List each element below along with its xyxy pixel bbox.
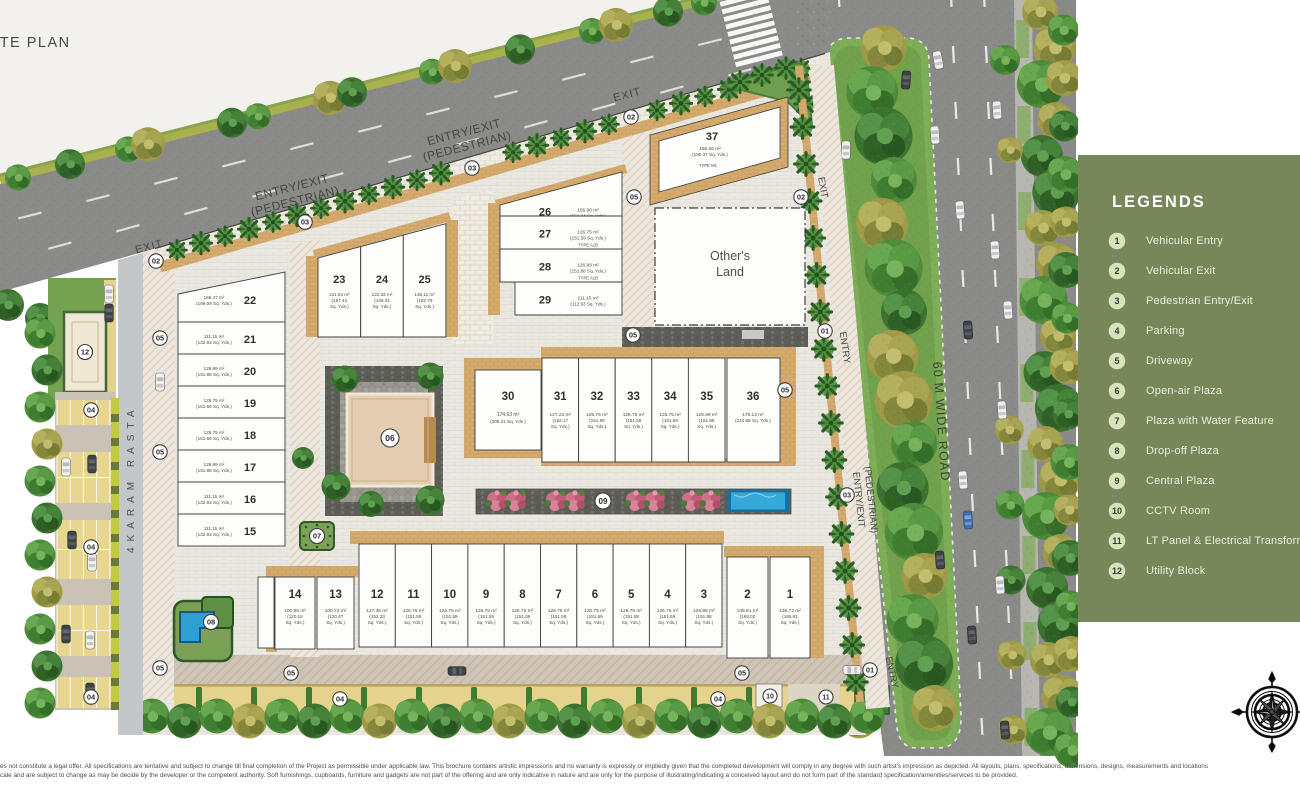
svg-text:09: 09 xyxy=(599,497,608,506)
svg-text:22: 22 xyxy=(244,295,256,307)
svg-text:TYPE M1: TYPE M1 xyxy=(699,163,718,168)
svg-text:Pedestrian Entry/Exit: Pedestrian Entry/Exit xyxy=(1146,295,1253,307)
svg-text:Sq. Yds.): Sq. Yds.) xyxy=(622,620,641,625)
svg-text:37: 37 xyxy=(706,131,718,143)
svg-text:12: 12 xyxy=(371,589,384,601)
svg-text:06: 06 xyxy=(385,433,395,443)
svg-text:31: 31 xyxy=(554,391,567,403)
svg-text:Sq. Yds.): Sq. Yds.) xyxy=(694,620,713,625)
svg-text:(151.59: (151.59 xyxy=(662,418,678,423)
svg-text:Other's: Other's xyxy=(710,249,750,263)
svg-text:29: 29 xyxy=(539,295,551,307)
svg-text:14: 14 xyxy=(289,589,302,601)
svg-text:34: 34 xyxy=(664,391,677,403)
svg-text:05: 05 xyxy=(287,669,295,678)
svg-text:(151.59 Sq. Yds.): (151.59 Sq. Yds.) xyxy=(570,236,606,241)
svg-text:04: 04 xyxy=(87,693,96,702)
svg-text:08: 08 xyxy=(207,618,215,627)
svg-text:111.15 m²: 111.15 m² xyxy=(204,494,224,499)
svg-text:(199.09 Sq. Yds.): (199.09 Sq. Yds.) xyxy=(196,301,232,306)
svg-text:3: 3 xyxy=(1114,296,1119,306)
svg-text:02: 02 xyxy=(627,113,635,122)
svg-text:cale and are subject to change: cale and are subject to change as may be… xyxy=(0,772,1018,779)
svg-text:04: 04 xyxy=(714,695,723,704)
svg-text:(151.59: (151.59 xyxy=(587,614,603,619)
svg-text:Sq. Yds.): Sq. Yds.) xyxy=(404,620,423,625)
svg-text:11: 11 xyxy=(407,589,420,601)
svg-text:Sq. Yds.): Sq. Yds.) xyxy=(661,424,680,429)
svg-text:8: 8 xyxy=(1114,446,1119,456)
svg-text:Drop-off Plaza: Drop-off Plaza xyxy=(1146,445,1220,457)
svg-text:21: 21 xyxy=(244,334,256,346)
svg-text:4KARAM RASTA: 4KARAM RASTA xyxy=(126,405,137,554)
svg-text:Sq. Yds.): Sq. Yds.) xyxy=(373,304,392,309)
svg-text:(151.59: (151.59 xyxy=(442,614,458,619)
svg-text:02: 02 xyxy=(152,257,160,266)
svg-text:2: 2 xyxy=(1114,266,1119,276)
svg-text:05: 05 xyxy=(738,669,746,678)
svg-text:03: 03 xyxy=(843,491,851,500)
svg-text:6: 6 xyxy=(1114,386,1119,396)
svg-text:04: 04 xyxy=(87,406,96,415)
svg-text:Sq. Yds.): Sq. Yds.) xyxy=(549,620,568,625)
svg-text:1: 1 xyxy=(787,589,794,601)
svg-text:Sq. Yds.): Sq. Yds.) xyxy=(697,424,716,429)
svg-text:4: 4 xyxy=(664,589,671,601)
svg-text:CCTV Room: CCTV Room xyxy=(1146,505,1210,517)
svg-text:(209.21 Sq. Yds.): (209.21 Sq. Yds.) xyxy=(490,419,526,424)
svg-text:Sq. Yds.): Sq. Yds.) xyxy=(781,620,800,625)
svg-text:es not constitute a legal offe: es not constitute a legal offer. All spe… xyxy=(0,763,1208,770)
svg-text:136.11 m²: 136.11 m² xyxy=(414,292,435,297)
svg-text:126.75 m²: 126.75 m² xyxy=(204,430,225,435)
svg-text:(120.16: (120.16 xyxy=(287,614,303,619)
svg-text:03: 03 xyxy=(301,218,309,227)
svg-text:6: 6 xyxy=(592,589,598,601)
svg-text:28: 28 xyxy=(539,262,551,274)
svg-text:05: 05 xyxy=(630,193,638,202)
svg-text:(152.33: (152.33 xyxy=(369,614,385,619)
svg-text:01: 01 xyxy=(821,327,829,336)
svg-text:Open-air Plaza: Open-air Plaza xyxy=(1146,385,1223,397)
svg-text:(151.88 Sq. Yds.): (151.88 Sq. Yds.) xyxy=(196,468,232,473)
svg-text:19: 19 xyxy=(244,398,256,410)
svg-text:10: 10 xyxy=(766,694,774,701)
svg-text:10: 10 xyxy=(1112,506,1122,516)
svg-text:(151.59: (151.59 xyxy=(406,614,422,619)
svg-text:03: 03 xyxy=(468,164,476,173)
svg-text:32: 32 xyxy=(591,391,604,403)
svg-text:7: 7 xyxy=(555,589,561,601)
svg-text:111.15 m²: 111.15 m² xyxy=(204,334,224,339)
svg-text:05: 05 xyxy=(156,664,164,673)
svg-text:Sq. Yds.): Sq. Yds.) xyxy=(477,620,496,625)
svg-text:20: 20 xyxy=(244,366,256,378)
svg-text:(165.91: (165.91 xyxy=(782,614,798,619)
svg-text:10: 10 xyxy=(443,589,456,601)
svg-text:(162.79: (162.79 xyxy=(417,298,433,303)
svg-text:36: 36 xyxy=(747,391,760,403)
svg-text:5: 5 xyxy=(628,589,635,601)
svg-text:(151.59: (151.59 xyxy=(515,614,531,619)
svg-text:Vehicular Exit: Vehicular Exit xyxy=(1146,265,1215,277)
svg-text:166.47 m²: 166.47 m² xyxy=(204,295,225,300)
svg-text:(151.59: (151.59 xyxy=(589,418,605,423)
svg-text:TYPE A1B: TYPE A1B xyxy=(578,276,598,281)
svg-text:(151.88 Sq. Yds.): (151.88 Sq. Yds.) xyxy=(570,269,606,274)
svg-text:Driveway: Driveway xyxy=(1146,355,1193,367)
svg-text:Sq. Yds.): Sq. Yds.) xyxy=(330,304,349,309)
svg-text:(132.93 Sq. Yds.): (132.93 Sq. Yds.) xyxy=(196,532,232,537)
svg-text:(151.59: (151.59 xyxy=(660,614,676,619)
svg-text:(210.65 Sq. Yds.): (210.65 Sq. Yds.) xyxy=(735,418,771,423)
svg-text:(151.59: (151.59 xyxy=(623,614,639,619)
svg-text:126.99 m²: 126.99 m² xyxy=(204,366,225,371)
svg-text:05: 05 xyxy=(781,386,789,395)
svg-text:18: 18 xyxy=(244,430,256,442)
svg-text:11: 11 xyxy=(1112,536,1122,546)
svg-text:01: 01 xyxy=(866,666,874,675)
svg-text:11: 11 xyxy=(822,695,830,702)
svg-text:126.75 m²: 126.75 m² xyxy=(204,398,225,403)
svg-text:Plaza with Water Feature: Plaza with Water Feature xyxy=(1146,415,1274,427)
svg-text:8: 8 xyxy=(519,589,526,601)
svg-text:Central Plaza: Central Plaza xyxy=(1146,475,1215,487)
svg-text:(151.59 Sq. Yds.): (151.59 Sq. Yds.) xyxy=(196,404,232,409)
svg-text:122.33 m²: 122.33 m² xyxy=(372,292,393,297)
svg-text:(151.59 Sq. Yds.): (151.59 Sq. Yds.) xyxy=(196,436,232,441)
svg-text:4: 4 xyxy=(1114,326,1119,336)
svg-text:35: 35 xyxy=(700,391,713,403)
svg-text:9: 9 xyxy=(483,589,489,601)
svg-text:24: 24 xyxy=(376,274,389,286)
svg-text:Sq. Yds.): Sq. Yds.) xyxy=(440,620,459,625)
svg-text:13: 13 xyxy=(329,589,342,601)
svg-text:(151.88 Sq. Yds.): (151.88 Sq. Yds.) xyxy=(196,372,232,377)
svg-text:Sq. Yds.): Sq. Yds.) xyxy=(585,620,604,625)
svg-text:131.64 m²: 131.64 m² xyxy=(329,292,350,297)
svg-text:(151.59: (151.59 xyxy=(551,614,567,619)
svg-text:(190.37 Sq. Yds.): (190.37 Sq. Yds.) xyxy=(692,152,728,157)
svg-text:5: 5 xyxy=(1114,356,1119,366)
svg-text:Vehicular Entry: Vehicular Entry xyxy=(1146,235,1223,247)
svg-text:Sq. Yds.): Sq. Yds.) xyxy=(415,304,434,309)
svg-text:TYPE A1B: TYPE A1B xyxy=(578,243,598,248)
svg-text:30: 30 xyxy=(502,391,515,403)
svg-text:Sq. Yds.): Sq. Yds.) xyxy=(326,620,345,625)
svg-text:(132.93 Sq. Yds.): (132.93 Sq. Yds.) xyxy=(196,340,232,345)
svg-text:25: 25 xyxy=(418,274,430,286)
svg-text:(151.59: (151.59 xyxy=(626,418,642,423)
svg-text:12: 12 xyxy=(1112,566,1122,576)
svg-text:15: 15 xyxy=(244,526,256,538)
svg-text:16: 16 xyxy=(244,494,256,506)
svg-text:Utility Block: Utility Block xyxy=(1146,565,1206,577)
svg-text:Parking: Parking xyxy=(1146,325,1185,337)
svg-text:1: 1 xyxy=(1114,236,1119,246)
svg-text:111.15 m²: 111.15 m² xyxy=(204,526,224,531)
svg-text:(157.44: (157.44 xyxy=(332,298,348,303)
svg-text:02: 02 xyxy=(797,193,805,202)
svg-text:LT Panel & Electrical Transfor: LT Panel & Electrical Transformer xyxy=(1146,535,1300,547)
svg-text:(132.93 Sq. Yds.): (132.93 Sq. Yds.) xyxy=(196,500,232,505)
svg-text:(151.88: (151.88 xyxy=(696,614,712,619)
svg-text:(151.88: (151.88 xyxy=(699,418,715,423)
svg-text:Land: Land xyxy=(716,265,744,279)
svg-text:(151.59: (151.59 xyxy=(478,614,494,619)
svg-text:126.99 m²: 126.99 m² xyxy=(204,462,225,467)
svg-text:23: 23 xyxy=(333,274,345,286)
svg-text:LEGENDS: LEGENDS xyxy=(1112,193,1206,211)
svg-text:Sq. Yds.): Sq. Yds.) xyxy=(286,620,305,625)
svg-text:07: 07 xyxy=(313,532,321,541)
svg-text:04: 04 xyxy=(87,543,96,552)
svg-text:27: 27 xyxy=(539,229,551,241)
svg-text:Sq. Yds.): Sq. Yds.) xyxy=(658,620,677,625)
svg-text:SITE PLAN: SITE PLAN xyxy=(0,35,71,51)
svg-text:Sq. Yds.): Sq. Yds.) xyxy=(513,620,532,625)
svg-text:2: 2 xyxy=(744,589,750,601)
svg-text:33: 33 xyxy=(627,391,640,403)
svg-text:7: 7 xyxy=(1114,416,1119,426)
svg-text:(146.31: (146.31 xyxy=(374,298,390,303)
svg-text:(152.17: (152.17 xyxy=(553,418,569,423)
svg-text:Sq. Yds.): Sq. Yds.) xyxy=(587,424,606,429)
svg-text:(112.93 Sq. Yds.): (112.93 Sq. Yds.) xyxy=(570,302,606,307)
svg-text:3: 3 xyxy=(701,589,707,601)
svg-text:Sq. Yds.): Sq. Yds.) xyxy=(624,424,643,429)
svg-text:05: 05 xyxy=(156,334,164,343)
svg-text:Sq. Yds.): Sq. Yds.) xyxy=(738,620,757,625)
svg-text:174.63 m²: 174.63 m² xyxy=(497,412,520,418)
svg-text:Sq. Yds.): Sq. Yds.) xyxy=(368,620,387,625)
svg-text:17: 17 xyxy=(244,462,256,474)
svg-text:05: 05 xyxy=(629,331,637,340)
svg-text:(120.47: (120.47 xyxy=(328,614,344,619)
svg-text:Sq. Yds.): Sq. Yds.) xyxy=(551,424,570,429)
svg-text:9: 9 xyxy=(1114,476,1119,486)
svg-text:12: 12 xyxy=(81,348,89,357)
svg-text:05: 05 xyxy=(156,448,164,457)
svg-text:04: 04 xyxy=(336,695,345,704)
svg-text:(166.02: (166.02 xyxy=(740,614,756,619)
